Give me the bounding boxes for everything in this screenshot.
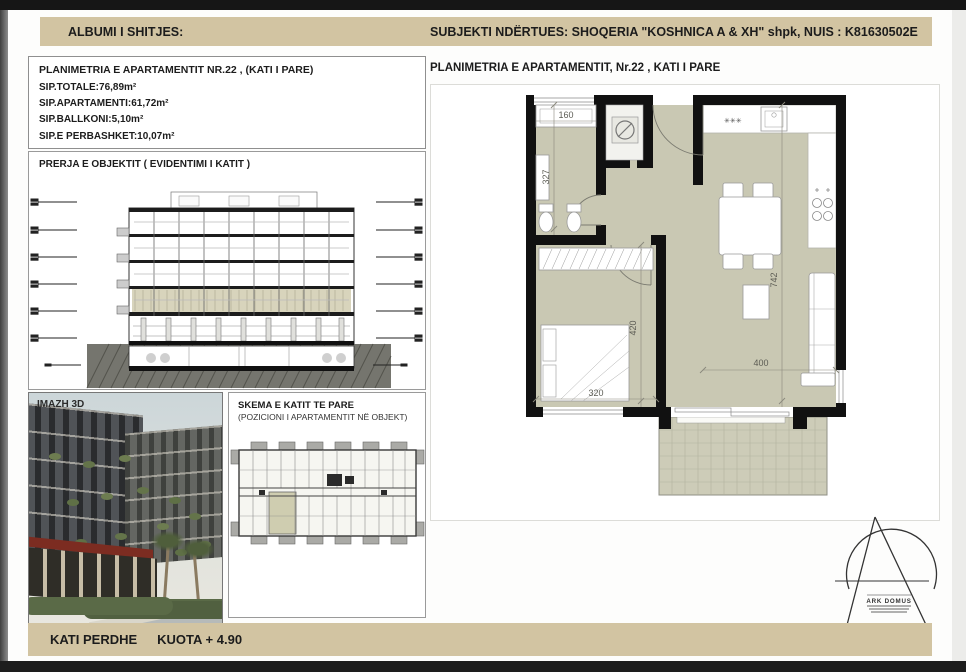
header-band: ALBUMI I SHITJES: SUBJEKTI NDËRTUES: SHO… bbox=[40, 17, 932, 46]
builder-subject: SUBJEKTI NDËRTUES: SHOQERIA "KOSHNICA A … bbox=[430, 25, 918, 39]
dim-living-width: 400 bbox=[753, 358, 768, 368]
surface-total: SIP.TOTALE:76,89m² bbox=[39, 80, 415, 96]
building-section-title: PRERJA E OBJEKTIT ( EVIDENTIMI I KATIT ) bbox=[29, 152, 425, 170]
ark-domus-logo-icon: ARK DOMUS bbox=[833, 505, 949, 631]
surface-balcony: SIP.BALLKONI:5,10m² bbox=[39, 112, 415, 128]
apartment-info-title: PLANIMETRIA E APARTAMENTIT NR.22 , (KATI… bbox=[39, 64, 415, 76]
page-bottom-edge bbox=[0, 661, 966, 672]
dim-bath-depth: 327 bbox=[541, 169, 551, 184]
plan-title: PLANIMETRIA E APARTAMENTIT, Nr.22 , KATI… bbox=[430, 62, 720, 74]
render-3d-label: IMAZH 3D bbox=[37, 399, 84, 410]
apartment-plan-box: 160 327 420 320 742 400 ✳✳✳ bbox=[430, 84, 940, 521]
architect-logo: ARK DOMUS bbox=[833, 505, 949, 631]
dim-bedroom-width: 320 bbox=[588, 388, 603, 398]
render-hedge bbox=[28, 597, 173, 615]
floor-schema-box: SKEMA E KATIT TE PARE (POZICIONI I APART… bbox=[228, 392, 426, 618]
basement bbox=[129, 346, 354, 371]
surface-common: SIP.E PERBASHKET:10,07m² bbox=[39, 129, 415, 145]
section-balconies bbox=[117, 228, 129, 314]
palm-tree-head bbox=[151, 531, 185, 551]
building-section-drawing bbox=[29, 170, 424, 398]
render-3d-box: IMAZH 3D bbox=[28, 392, 223, 629]
palm-tree bbox=[193, 551, 201, 607]
building-section-box: PRERJA E OBJEKTIT ( EVIDENTIMI I KATIT ) bbox=[28, 151, 426, 390]
page-right-edge bbox=[952, 10, 966, 661]
render-balcony-plants bbox=[49, 453, 61, 460]
apartment-info-box: PLANIMETRIA E APARTAMENTIT NR.22 , (KATI… bbox=[28, 56, 426, 149]
album-sheet: ALBUMI I SHITJES: SUBJEKTI NDËRTUES: SHO… bbox=[0, 0, 966, 672]
coffee-table bbox=[743, 285, 769, 319]
kitchen-hooks-marks: ✳✳✳ bbox=[724, 117, 742, 125]
floor-schema-drawing bbox=[229, 430, 425, 600]
sofa bbox=[809, 273, 835, 381]
apartment-plan-drawing: 160 327 420 320 742 400 ✳✳✳ bbox=[431, 85, 939, 520]
dining-table bbox=[719, 197, 781, 255]
floor-schema-subtitle: (POZICIONI I APARTAMENTIT NË OBJEKT) bbox=[229, 411, 425, 422]
dim-bedroom-depth: 420 bbox=[628, 320, 638, 335]
floor-label: KATI PERDHE bbox=[50, 632, 137, 647]
schema-highlighted-unit bbox=[269, 492, 296, 534]
schema-outline bbox=[239, 450, 416, 536]
surface-apartment: SIP.APARTAMENTI:61,72m² bbox=[39, 96, 415, 112]
quota-label: KUOTA + 4.90 bbox=[157, 632, 242, 647]
palm-tree-head bbox=[181, 539, 215, 559]
album-title: ALBUMI I SHITJES: bbox=[68, 25, 183, 39]
footer-band: KATI PERDHE KUOTA + 4.90 bbox=[28, 623, 932, 656]
page-left-edge bbox=[0, 10, 8, 661]
dim-bath-width: 160 bbox=[558, 110, 573, 120]
building-body bbox=[117, 192, 354, 345]
floor-schema-title: SKEMA E KATIT TE PARE bbox=[229, 393, 425, 411]
dim-living-depth: 742 bbox=[769, 272, 779, 287]
shaft bbox=[606, 105, 643, 160]
logo-text: ARK DOMUS bbox=[866, 598, 911, 605]
elevation-markers-left bbox=[31, 199, 81, 366]
page-top-edge bbox=[0, 0, 966, 10]
elevation-markers-right bbox=[373, 199, 422, 366]
